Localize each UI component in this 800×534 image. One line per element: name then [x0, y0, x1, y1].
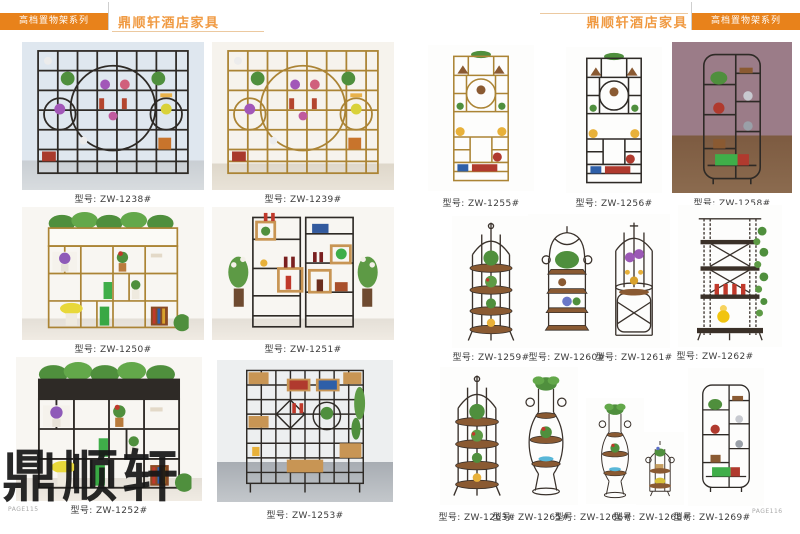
catalog-page: 高档置物架系列 鼎顺轩酒店家具 鼎顺轩酒店家具 高档置物架系列 型号: ZW-1…	[0, 0, 800, 534]
product-model-label-zw-1251: 型号: ZW-1251#	[212, 342, 394, 355]
roundtop-shelf-illustration	[679, 47, 785, 188]
product-photo-zw-1256	[566, 47, 662, 193]
roundtop-shelf-illustration	[695, 373, 757, 501]
product-photo-zw-1239	[212, 42, 394, 190]
tall-shelf-illustration	[435, 50, 527, 186]
tall-shelf-illustration	[573, 52, 655, 188]
product-model-label-zw-1253: 型号: ZW-1253#	[217, 508, 393, 521]
product-photo-zw-1238	[22, 42, 204, 190]
birdcage-stand-illustration	[459, 221, 523, 343]
product-model-label-zw-1255: 型号: ZW-1255#	[418, 196, 544, 209]
product-model-label-zw-1262: 型号: ZW-1262#	[655, 349, 775, 362]
planter-shelf-illustration	[23, 362, 195, 496]
chain-shelf-illustration	[685, 210, 775, 342]
product-photo-zw-1262	[678, 205, 782, 347]
arch-stand-illustration	[535, 219, 599, 343]
page-number-right: PAGE116	[752, 508, 783, 515]
cylinder-cage-illustration	[605, 219, 663, 343]
page-number-left: PAGE115	[8, 506, 39, 513]
series-badge-right: 高档置物架系列	[692, 13, 800, 30]
product-photo-zw-1252	[16, 357, 202, 501]
product-photo-zw-1259	[452, 216, 530, 348]
double-bay-shelf-illustration	[219, 212, 387, 335]
small-birdcage-illustration	[643, 437, 677, 500]
grid-shelf-illustration	[224, 365, 386, 497]
product-model-label-zw-1252: 型号: ZW-1252#	[16, 503, 202, 516]
header-rule-left	[112, 31, 264, 32]
product-model-label-zw-1250: 型号: ZW-1250#	[22, 342, 204, 355]
vase-stand-illustration	[593, 403, 637, 499]
product-photo-zw-1260	[528, 214, 606, 348]
vase-stand-illustration	[521, 372, 571, 500]
product-photo-zw-1253	[217, 360, 393, 502]
product-photo-zw-1261	[598, 214, 670, 348]
brand-title-left: 鼎顺轩酒店家具	[118, 12, 258, 31]
product-photo-zw-1258	[672, 42, 792, 193]
series-badge-left: 高档置物架系列	[0, 13, 108, 30]
planter-shelf-illustration	[29, 212, 197, 335]
brand-title-right: 鼎顺轩酒店家具	[586, 12, 688, 31]
product-photo-zw-1251	[212, 207, 394, 340]
product-model-label-zw-1256: 型号: ZW-1256#	[554, 196, 674, 209]
screen-shelf-illustration	[29, 47, 197, 185]
screen-shelf-illustration	[219, 47, 387, 185]
product-photo-zw-1265	[514, 367, 578, 505]
product-model-label-zw-1239: 型号: ZW-1239#	[212, 192, 394, 205]
product-photo-zw-1250	[22, 207, 204, 340]
product-model-label-zw-1238: 型号: ZW-1238#	[22, 192, 204, 205]
birdcage-stand-illustration	[447, 372, 507, 500]
product-photo-zw-1255	[428, 45, 534, 191]
product-photo-zw-1268	[636, 432, 684, 505]
product-photo-zw-1263	[440, 367, 514, 505]
product-photo-zw-1269	[688, 368, 764, 506]
header-divider-left	[108, 2, 109, 30]
